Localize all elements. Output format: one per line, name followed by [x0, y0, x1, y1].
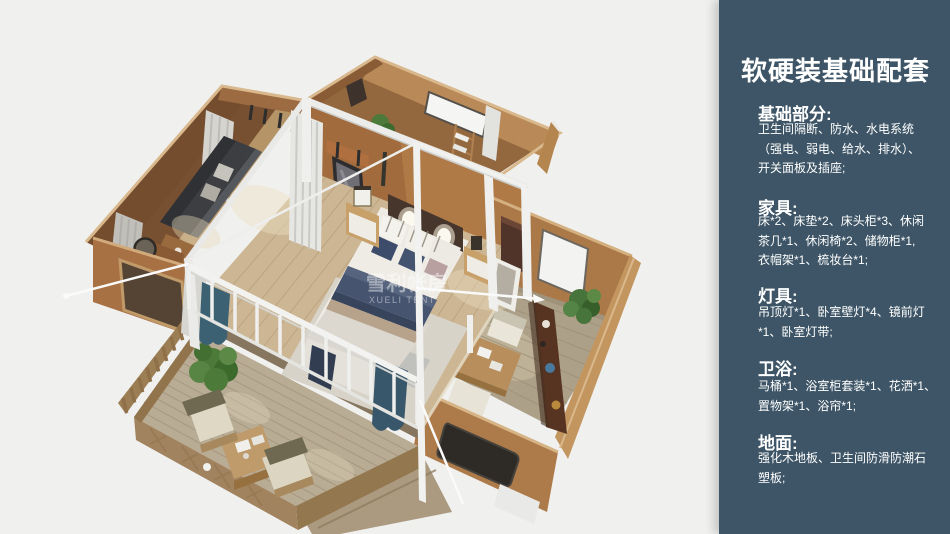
svg-text:雪利帐房: 雪利帐房: [366, 271, 448, 295]
svg-text:XUELI TENT: XUELI TENT: [369, 295, 436, 305]
